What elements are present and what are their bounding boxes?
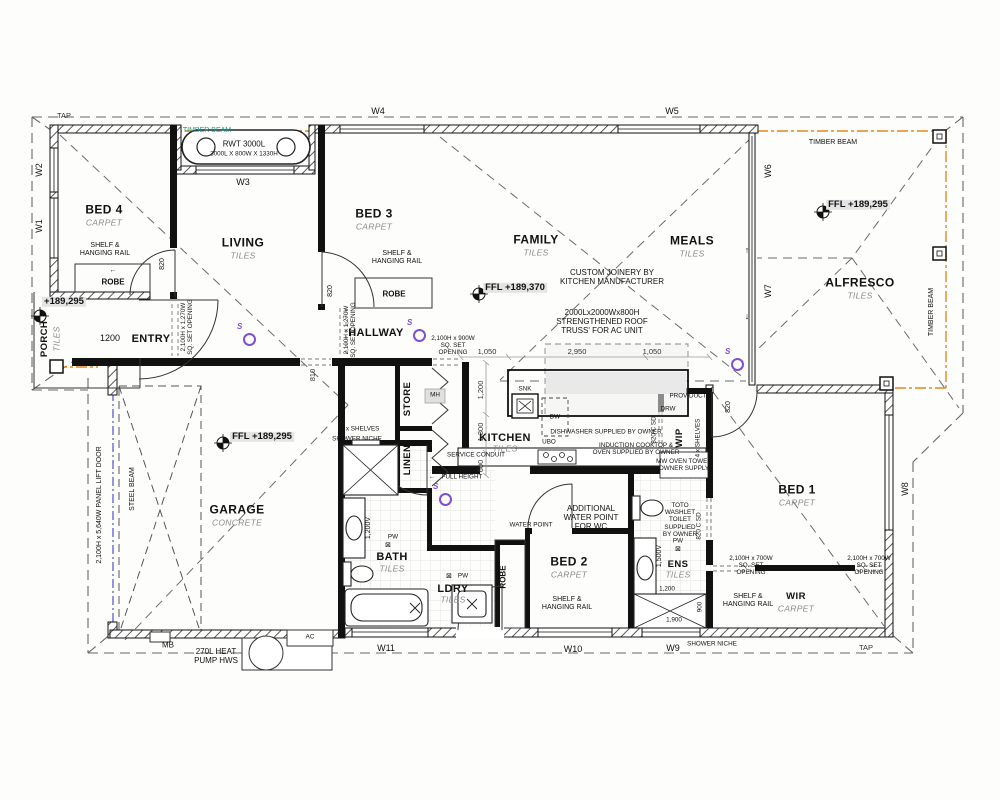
window-label-w3: W3 bbox=[236, 178, 250, 188]
water-point-label: WATER POINT bbox=[509, 523, 552, 530]
floor-plan: TAP W4 W5 TIMBER BEAM RWT 3000L 3000L X … bbox=[0, 0, 1000, 800]
door-dim-bed4: 820 bbox=[159, 258, 167, 270]
kitchen-dim-1050a: 1,050 bbox=[478, 348, 497, 356]
ffl-label-family: FFL +189,370 bbox=[483, 283, 547, 293]
room-label-bed4: BED 4 bbox=[85, 203, 122, 216]
shelves-label-wip: 4 x SHELVES bbox=[696, 419, 703, 458]
kitchen-dim-1200: 1,200 bbox=[477, 381, 485, 400]
stacker-arrow-up: ↑ bbox=[745, 246, 750, 256]
sq-set-700-right: 2,100H x 700W SQ. SET OPENING bbox=[847, 555, 890, 577]
room-finish-bed4: CARPET bbox=[86, 218, 122, 227]
csd-label-wip: 820 C SD bbox=[652, 416, 659, 443]
panel-lift-door-label: 2,100H x 5,640W PANEL LIFT DOOR bbox=[96, 446, 104, 563]
room-finish-family: TILES bbox=[523, 248, 548, 257]
ens-dim-1900: 1,900 bbox=[666, 618, 682, 625]
garage-opening-dim: 810 bbox=[309, 369, 317, 382]
kitchen-dim-2950: 2,950 bbox=[568, 348, 587, 356]
room-label-living: LIVING bbox=[222, 236, 264, 249]
room-label-entry: ENTRY bbox=[132, 333, 171, 345]
room-label-store: STORE bbox=[403, 382, 413, 417]
shower-niche-label-ens: SHOWER NICHE bbox=[687, 642, 737, 649]
room-finish-living: TILES bbox=[230, 251, 255, 260]
room-label-linen: LINEN bbox=[403, 445, 413, 476]
pw-symbol-ens: ⊠ bbox=[675, 546, 681, 554]
sq-set-opening-900: 2,100H x 900W SQ. SET OPENING bbox=[431, 335, 474, 357]
pw-symbol-bath: ⊠ bbox=[385, 542, 391, 550]
room-label-porch: PORCH bbox=[40, 321, 50, 357]
dishwasher-note: DISHWASHER SUPPLIED BY OWNER bbox=[550, 430, 661, 437]
rwt-label-2: 3000L X 800W X 1330H bbox=[210, 152, 278, 159]
manhole-label: MH bbox=[429, 393, 441, 400]
pw-label-ldry: PW bbox=[458, 574, 468, 581]
window-label-w2: W2 bbox=[35, 163, 45, 177]
smoke-detector-living: S bbox=[239, 329, 255, 345]
window-label-w5: W5 bbox=[665, 107, 679, 117]
room-finish-garage: CONCRETE bbox=[212, 518, 262, 527]
window-label-w8: W8 bbox=[901, 482, 911, 496]
steel-beam-label: STEEL BEAM bbox=[129, 467, 137, 511]
smoke-detector-icon bbox=[439, 493, 452, 506]
drawers-label: DRW bbox=[661, 407, 676, 414]
timber-beam-label-right: TIMBER BEAM bbox=[928, 288, 936, 336]
room-label-wip: WIP bbox=[675, 428, 685, 447]
window-label-w9: W9 bbox=[666, 644, 680, 654]
shelf-rail-label-bed3: SHELF & HANGING RAIL bbox=[372, 250, 422, 266]
room-label-family: FAMILY bbox=[513, 233, 558, 246]
room-finish-bed3: CARPET bbox=[356, 222, 392, 231]
room-label-wir: WIR bbox=[786, 592, 806, 602]
pw-label-ens: PW bbox=[673, 539, 683, 546]
room-label-bed3: BED 3 bbox=[355, 207, 392, 220]
shelf-rail-label-bed2: SHELF & HANGING RAIL bbox=[542, 596, 592, 612]
smoke-detector-icon bbox=[413, 329, 426, 342]
shelf-rail-label-wir: SHELF & HANGING RAIL bbox=[723, 593, 773, 609]
pw-symbol-ldry: ⊠ bbox=[446, 573, 452, 581]
room-label-ldry: LDRY bbox=[437, 583, 468, 595]
robe-arrow-bed4: ← bbox=[110, 267, 117, 275]
smoke-detector-hallway: S bbox=[409, 325, 425, 341]
room-finish-alfresco: TILES bbox=[847, 291, 872, 300]
room-finish-meals: TILES bbox=[679, 249, 704, 258]
room-finish-wir: CARPET bbox=[778, 604, 814, 613]
robe-label-bed3: ROBE bbox=[382, 291, 405, 300]
roof-truss-note: 2000Lx2000Wx800H STRENGTHENED ROOF TRUSS… bbox=[556, 308, 648, 336]
kitchen-dim-1050b: 1,050 bbox=[643, 348, 662, 356]
prov-duct-label: PROV DUCT bbox=[669, 394, 706, 401]
room-finish-bed2: CARPET bbox=[551, 570, 587, 579]
window-label-w1: W1 bbox=[35, 219, 45, 233]
sink-label: SNK bbox=[519, 387, 532, 394]
smoke-detector-rear-hall: S bbox=[435, 489, 451, 505]
sq-set-opening-living: 2,100H x 1,270W SQ. SET OPENING bbox=[180, 299, 194, 355]
smoke-detector-meals: S bbox=[727, 354, 743, 370]
full-height-label: FULL HEIGHT bbox=[442, 475, 483, 482]
toto-note: TOTO WASHLET TOILET SUPPLIED BY OWNER bbox=[663, 502, 697, 538]
room-label-garage: GARAGE bbox=[209, 503, 264, 516]
smoke-detector-icon bbox=[731, 358, 744, 371]
room-label-bath: BATH bbox=[376, 551, 407, 563]
window-label-w4: W4 bbox=[371, 107, 385, 117]
custom-joinery-note: CUSTOM JOINERY BY KITCHEN MANUFACTURER bbox=[560, 268, 664, 286]
ens-vanity-dim: 1,500V bbox=[656, 545, 664, 567]
heat-pump-label: 270L HEAT PUMP HWS bbox=[194, 647, 238, 665]
pw-label-bath: PW bbox=[388, 535, 398, 542]
room-finish-porch: TILES bbox=[52, 326, 61, 351]
window-label-w6: W6 bbox=[764, 164, 774, 178]
robe-label-bed4: ROBE bbox=[101, 279, 124, 288]
stacker-arrow-down: ↓ bbox=[745, 312, 750, 322]
dishwasher-abbrev: DW bbox=[550, 415, 561, 422]
room-label-bed1: BED 1 bbox=[778, 483, 815, 496]
tap-label-bottom: TAP bbox=[859, 644, 873, 652]
window-label-w11: W11 bbox=[377, 644, 395, 654]
meter-box-label: MB bbox=[162, 642, 174, 651]
window-label-w10: W10 bbox=[564, 645, 583, 655]
service-conduit-note: SERVICE CONDUIT bbox=[447, 453, 505, 460]
door-dim-bed1: 820 bbox=[725, 401, 733, 413]
rwt-label-1: RWT 3000L bbox=[223, 141, 265, 150]
room-label-kitchen: KITCHEN bbox=[479, 432, 531, 444]
timber-beam-label-topright: TIMBER BEAM bbox=[809, 139, 857, 147]
window-label-w7: W7 bbox=[764, 284, 774, 298]
ac-label: AC bbox=[306, 635, 315, 642]
additional-water-point-label: ADDITIONAL WATER POINT FOR WC bbox=[564, 504, 619, 532]
sq-set-700-left: 2,100H x 700W SQ. SET OPENING bbox=[729, 555, 772, 577]
robe-label-bed2: ROBE bbox=[500, 565, 509, 588]
floorplan-linework bbox=[0, 0, 1000, 800]
ens-dim-1200: 1,200 bbox=[659, 587, 675, 594]
tap-label-top: TAP bbox=[57, 112, 71, 120]
room-finish-bath: TILES bbox=[379, 564, 404, 573]
room-label-alfresco: ALFRESCO bbox=[825, 276, 894, 289]
room-label-meals: MEALS bbox=[670, 234, 714, 247]
ubo-label: UBO bbox=[542, 440, 556, 447]
bath-vanity-dim: 1,200V bbox=[365, 517, 373, 539]
ffl-label-alfresco: FFL +189,295 bbox=[826, 200, 890, 210]
ffl-label-garage: FFL +189,295 bbox=[230, 432, 294, 442]
room-label-hallway: HALLWAY bbox=[348, 327, 404, 339]
induction-note: INDUCTION COOKTOP & OVEN SUPPLIED BY OWN… bbox=[593, 442, 680, 456]
timber-beam-label-topleft: TIMBER BEAM bbox=[183, 127, 231, 135]
csd-label-ens: 820 C SD bbox=[697, 512, 704, 539]
entry-door-dim: 1200 bbox=[100, 334, 120, 344]
room-finish-bed1: CARPET bbox=[779, 498, 815, 507]
porch-rl-label: +189,295 bbox=[42, 297, 86, 307]
kitchen-dim-600: 600 bbox=[477, 460, 485, 473]
room-label-bed2: BED 2 bbox=[550, 555, 587, 568]
full-height-arrow: ← bbox=[429, 475, 435, 482]
shelves-label-bath: 4 x SHELVES bbox=[341, 427, 380, 434]
room-finish-ldry: TILES bbox=[440, 595, 465, 604]
door-dim-bed3: 820 bbox=[327, 285, 335, 297]
shower-niche-label-bath: SHOWER NICHE bbox=[332, 437, 382, 444]
shelf-rail-label-bed4: SHELF & HANGING RAIL bbox=[80, 242, 130, 258]
room-finish-ens: TILES bbox=[665, 570, 690, 579]
smoke-detector-icon bbox=[243, 333, 256, 346]
ens-dim-900: 900 bbox=[698, 602, 705, 613]
mw-oven-note: MW OVEN TOWER OWNER SUPPLY bbox=[656, 458, 712, 472]
